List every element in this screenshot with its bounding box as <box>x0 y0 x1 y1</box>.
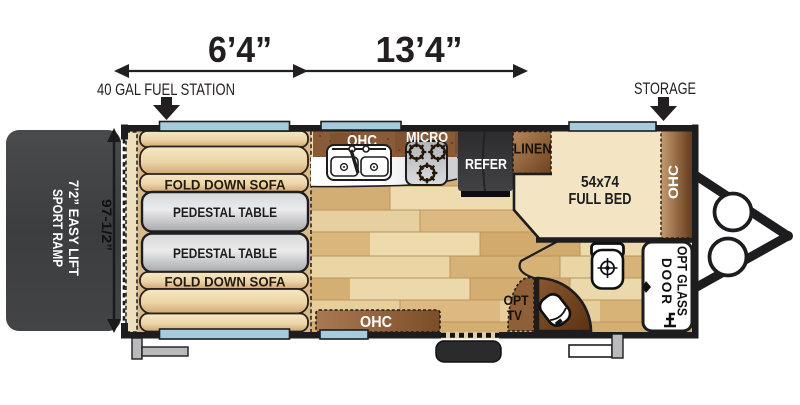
svg-text:13’4”: 13’4” <box>376 29 463 70</box>
svg-text:54x74: 54x74 <box>581 174 619 191</box>
svg-text:STORAGE: STORAGE <box>634 79 696 98</box>
svg-text:OPT: OPT <box>504 292 529 308</box>
svg-text:FULL BED: FULL BED <box>569 191 632 208</box>
svg-text:LINEN: LINEN <box>514 141 552 158</box>
svg-text:40 GAL FUEL STATION: 40 GAL FUEL STATION <box>97 80 235 99</box>
svg-text:FOLD DOWN SOFA: FOLD DOWN SOFA <box>165 177 286 193</box>
svg-text:PEDESTAL TABLE: PEDESTAL TABLE <box>173 204 277 220</box>
svg-text:REFER: REFER <box>465 156 507 173</box>
svg-text:TV: TV <box>507 307 523 323</box>
svg-text:OHC: OHC <box>665 165 681 199</box>
svg-text:7’2” EASY LIFTSPORT RAMP: 7’2” EASY LIFTSPORT RAMP <box>50 180 82 276</box>
svg-text:MICRO: MICRO <box>406 129 448 146</box>
svg-text:6’4”: 6’4” <box>208 29 272 70</box>
svg-text:97-1/2”: 97-1/2” <box>99 199 114 251</box>
svg-text:FOLD DOWN SOFA: FOLD DOWN SOFA <box>165 274 286 290</box>
svg-text:PEDESTAL TABLE: PEDESTAL TABLE <box>173 245 277 261</box>
svg-text:OHC: OHC <box>360 314 392 331</box>
